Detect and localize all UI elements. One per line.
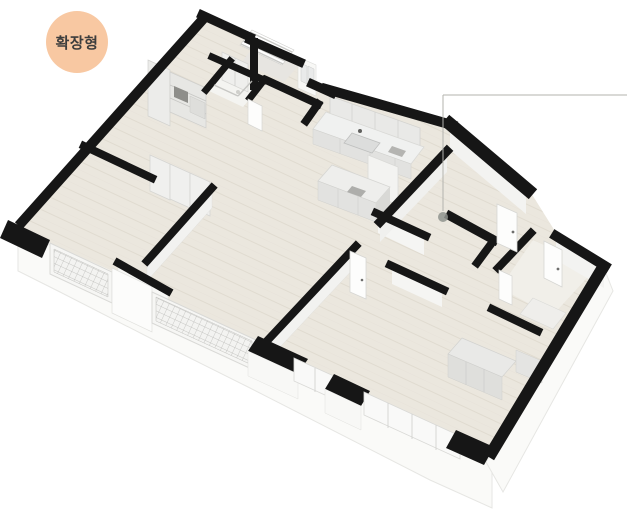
callout-dot xyxy=(438,212,448,222)
door-bath2 xyxy=(499,270,512,305)
door-bed2 xyxy=(350,251,366,299)
floorplan-image: 확장형 xyxy=(0,0,627,512)
bath1-drain xyxy=(236,90,240,94)
floorplan-canvas xyxy=(0,0,627,512)
plan-type-badge-label: 확장형 xyxy=(56,32,99,53)
door-hall-2-handle xyxy=(557,268,560,271)
door-hall-1-handle xyxy=(512,231,515,234)
door-bed2-handle xyxy=(361,279,364,282)
kitchen-faucet xyxy=(358,129,362,133)
plan-type-badge: 확장형 xyxy=(46,11,108,73)
